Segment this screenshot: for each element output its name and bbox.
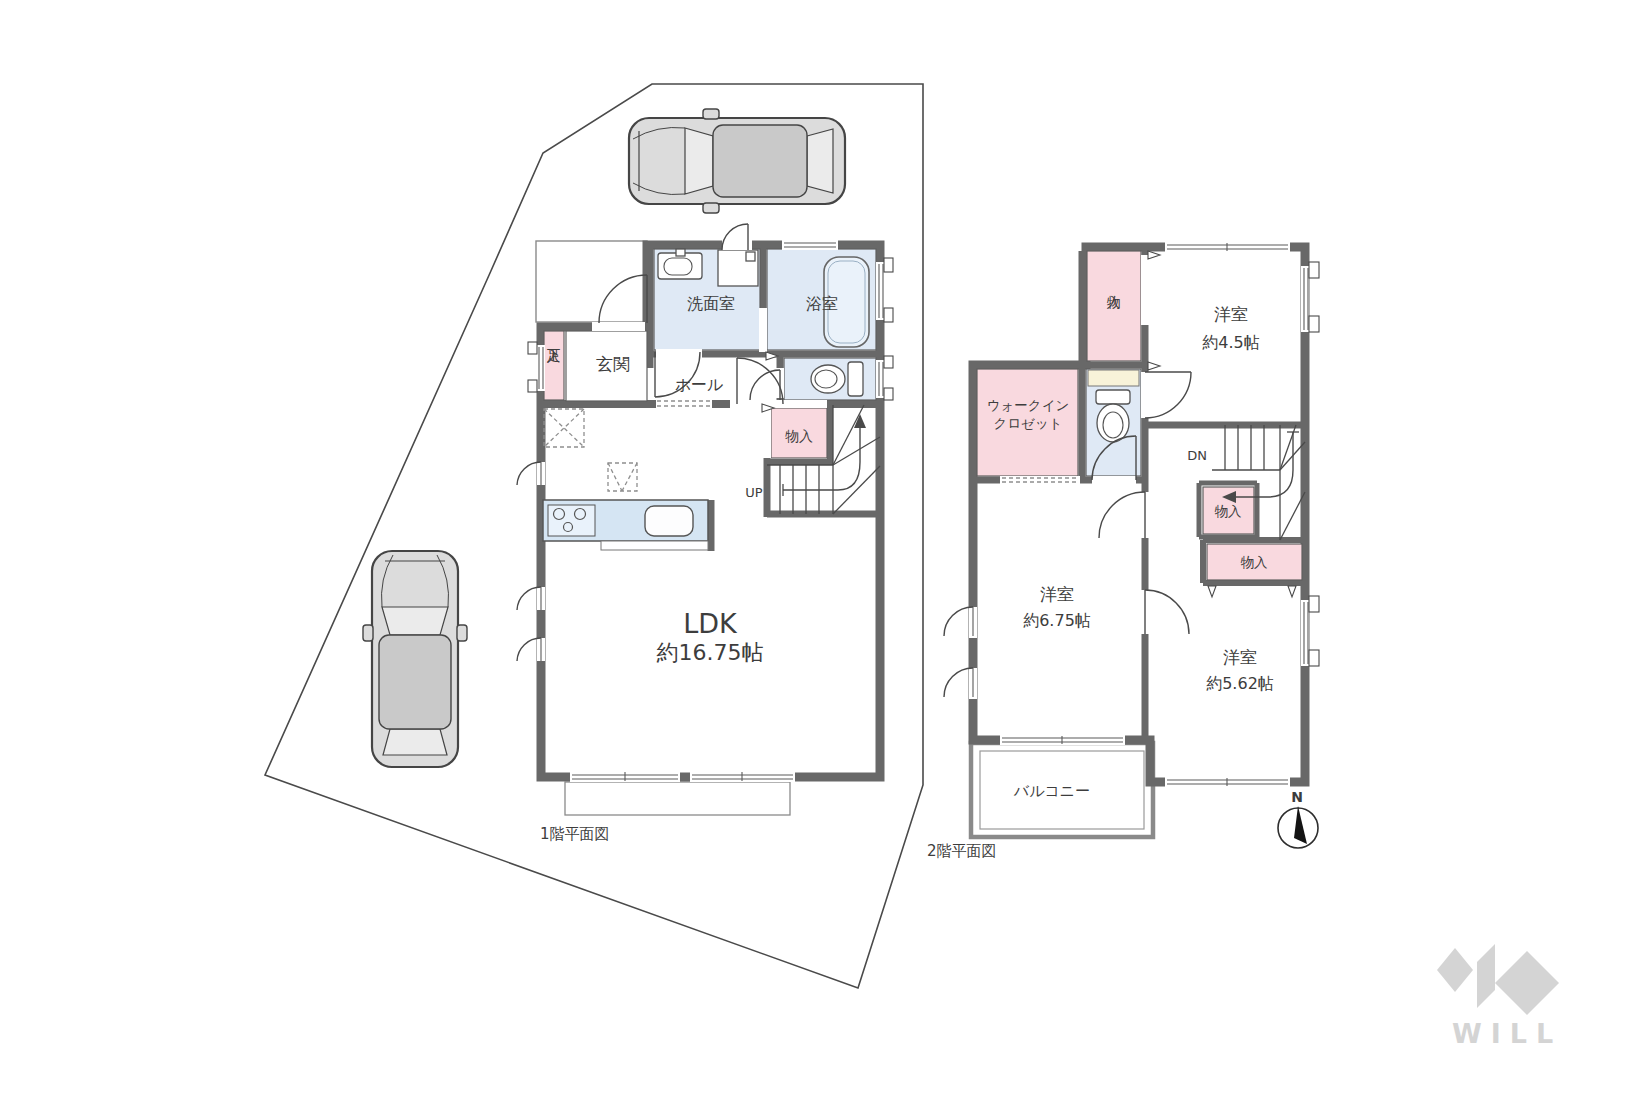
toilet-2f-icon: [1096, 390, 1130, 442]
floorplan-canvas: 下足入 玄関 洗面室 浴室 ホール 物入 UP LDK 約16.75帖 1階平面…: [0, 0, 1639, 1093]
room-a-area-label: 約4.5帖: [1202, 333, 1259, 352]
floor2-plan: 物入 洋室 約4.5帖 ウォークイン クロゼット DN 物入 物入 洋室 約6.…: [927, 242, 1319, 860]
parked-car-top: [629, 109, 845, 213]
door-swing-marker: [1148, 251, 1160, 259]
floor2-caption: 2階平面図: [927, 842, 997, 860]
storage-1f-label: 物入: [785, 428, 813, 444]
ldk-area-label: 約16.75帖: [657, 640, 764, 665]
washroom-label: 洗面室: [687, 294, 735, 313]
compass: N: [1278, 789, 1318, 848]
will-brand-label: WILL: [1452, 1018, 1562, 1049]
will-logo-icon: [1495, 951, 1559, 1015]
will-logo-icon: [1437, 948, 1473, 992]
compass-n-label: N: [1291, 789, 1303, 805]
will-logo-icon: [1477, 944, 1495, 1008]
storage-wide-2f-label: 物入: [1241, 554, 1269, 570]
ldk-label: LDK: [683, 608, 738, 639]
sink-icon: [645, 506, 693, 536]
washbasin-icon: [658, 249, 702, 279]
wic-label-line2: クロゼット: [993, 415, 1062, 431]
toilet-1f-icon: [811, 362, 863, 396]
storage-mid-2f-label: 物入: [1215, 503, 1243, 519]
toilet-2f-shelf: [1088, 370, 1139, 386]
hall-label: ホール: [675, 375, 724, 394]
room-c-area-label: 約5.62帖: [1206, 674, 1274, 693]
wic-label-line1: ウォークイン: [987, 397, 1070, 413]
floorplan-drawing: 下足入 玄関 洗面室 浴室 ホール 物入 UP LDK 約16.75帖 1階平面…: [0, 0, 1639, 1093]
will-watermark: WILL: [1437, 944, 1562, 1049]
floor1-caption: 1階平面図: [540, 825, 610, 843]
floor1-porch: [536, 241, 647, 322]
stairs-dn-label: DN: [1187, 448, 1207, 463]
room-b-label: 洋室: [1040, 584, 1074, 604]
room-b-area-label: 約6.75帖: [1023, 611, 1091, 630]
balcony-label: バルコニー: [1013, 782, 1090, 800]
entrance-label: 玄関: [596, 354, 630, 374]
door-swing-marker: [1208, 586, 1216, 597]
room-a-label: 洋室: [1214, 304, 1248, 324]
room-c-label: 洋室: [1223, 647, 1257, 667]
washer-pan-icon: [718, 250, 758, 286]
room-storage-top-2f: [1087, 251, 1141, 361]
pantry-space-dashed: [608, 463, 637, 491]
kitchen-counter: [543, 500, 708, 550]
stairs-up-label: UP: [745, 485, 763, 500]
floor1-terrace: [565, 782, 790, 815]
door-swing-marker: [1288, 586, 1296, 597]
room-shoe-storage: [544, 331, 564, 400]
fridge-space-dashed: [544, 409, 584, 447]
parked-car-left: [363, 551, 467, 767]
door-swing-marker: [1148, 362, 1160, 370]
floor1-plan: 下足入 玄関 洗面室 浴室 ホール 物入 UP LDK 約16.75帖 1階平面…: [517, 224, 893, 843]
bathroom-label: 浴室: [806, 294, 838, 313]
